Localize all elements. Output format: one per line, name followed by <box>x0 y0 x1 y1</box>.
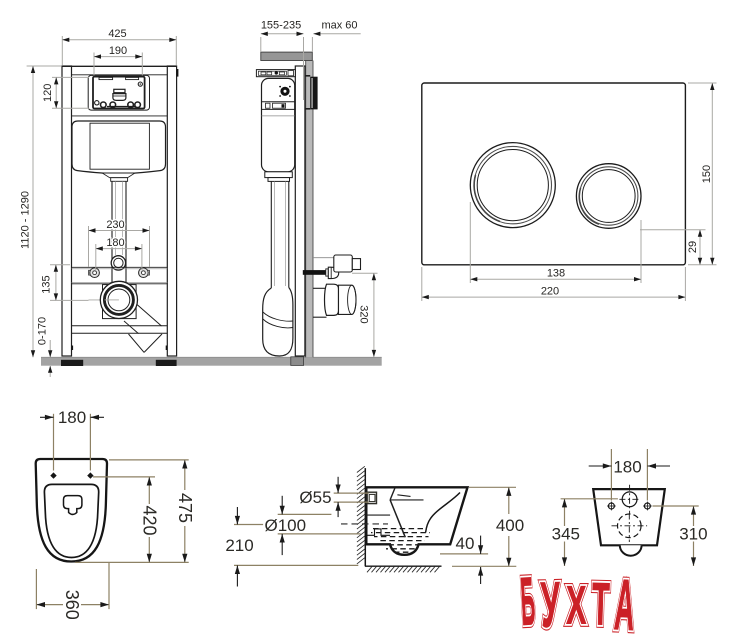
svg-text:135: 135 <box>41 275 53 293</box>
svg-text:190: 190 <box>109 45 127 57</box>
svg-text:1120 - 1290: 1120 - 1290 <box>20 191 32 249</box>
svg-text:425: 425 <box>108 28 126 40</box>
svg-text:230: 230 <box>106 219 124 231</box>
svg-text:Т: Т <box>591 570 610 637</box>
svg-text:Ø100: Ø100 <box>265 516 307 535</box>
svg-text:360: 360 <box>62 590 82 620</box>
svg-text:420: 420 <box>139 505 159 535</box>
svg-text:Х: Х <box>566 576 586 636</box>
svg-text:475: 475 <box>175 493 195 523</box>
svg-text:138: 138 <box>547 268 565 280</box>
svg-text:29: 29 <box>687 241 699 253</box>
svg-text:320: 320 <box>358 305 370 323</box>
svg-text:180: 180 <box>58 408 86 427</box>
svg-text:0-170: 0-170 <box>37 317 49 345</box>
svg-text:155-235: 155-235 <box>261 20 301 32</box>
svg-text:max 60: max 60 <box>321 20 357 32</box>
svg-text:220: 220 <box>541 286 559 298</box>
svg-text:А: А <box>613 565 637 640</box>
svg-text:400: 400 <box>496 516 524 535</box>
svg-text:У: У <box>540 568 561 640</box>
svg-text:40: 40 <box>456 534 475 553</box>
svg-text:180: 180 <box>106 237 124 249</box>
svg-text:120: 120 <box>42 84 54 102</box>
svg-text:210: 210 <box>225 536 253 555</box>
svg-text:345: 345 <box>552 525 580 544</box>
svg-text:Ø55: Ø55 <box>299 488 331 507</box>
svg-text:310: 310 <box>679 525 707 544</box>
svg-text:150: 150 <box>701 165 713 183</box>
svg-text:180: 180 <box>613 457 641 476</box>
